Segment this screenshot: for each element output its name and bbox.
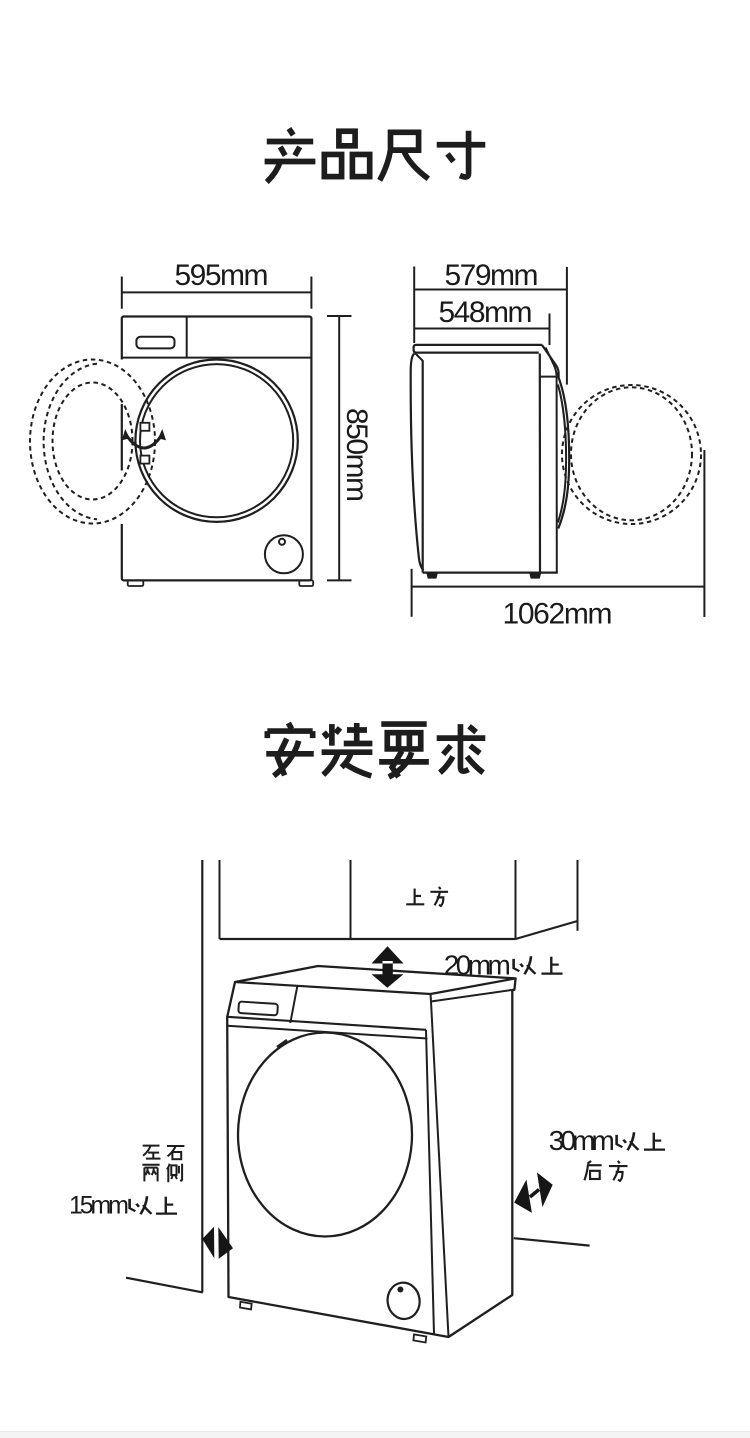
svg-text:548mm: 548mm <box>439 296 533 329</box>
svg-text:30mm: 30mm <box>549 1125 615 1156</box>
svg-text:1062mm: 1062mm <box>503 598 613 631</box>
svg-text:850mm: 850mm <box>340 408 373 502</box>
svg-text:15mm: 15mm <box>69 1192 129 1220</box>
svg-text:595mm: 595mm <box>175 259 269 292</box>
svg-text:579mm: 579mm <box>445 259 539 292</box>
